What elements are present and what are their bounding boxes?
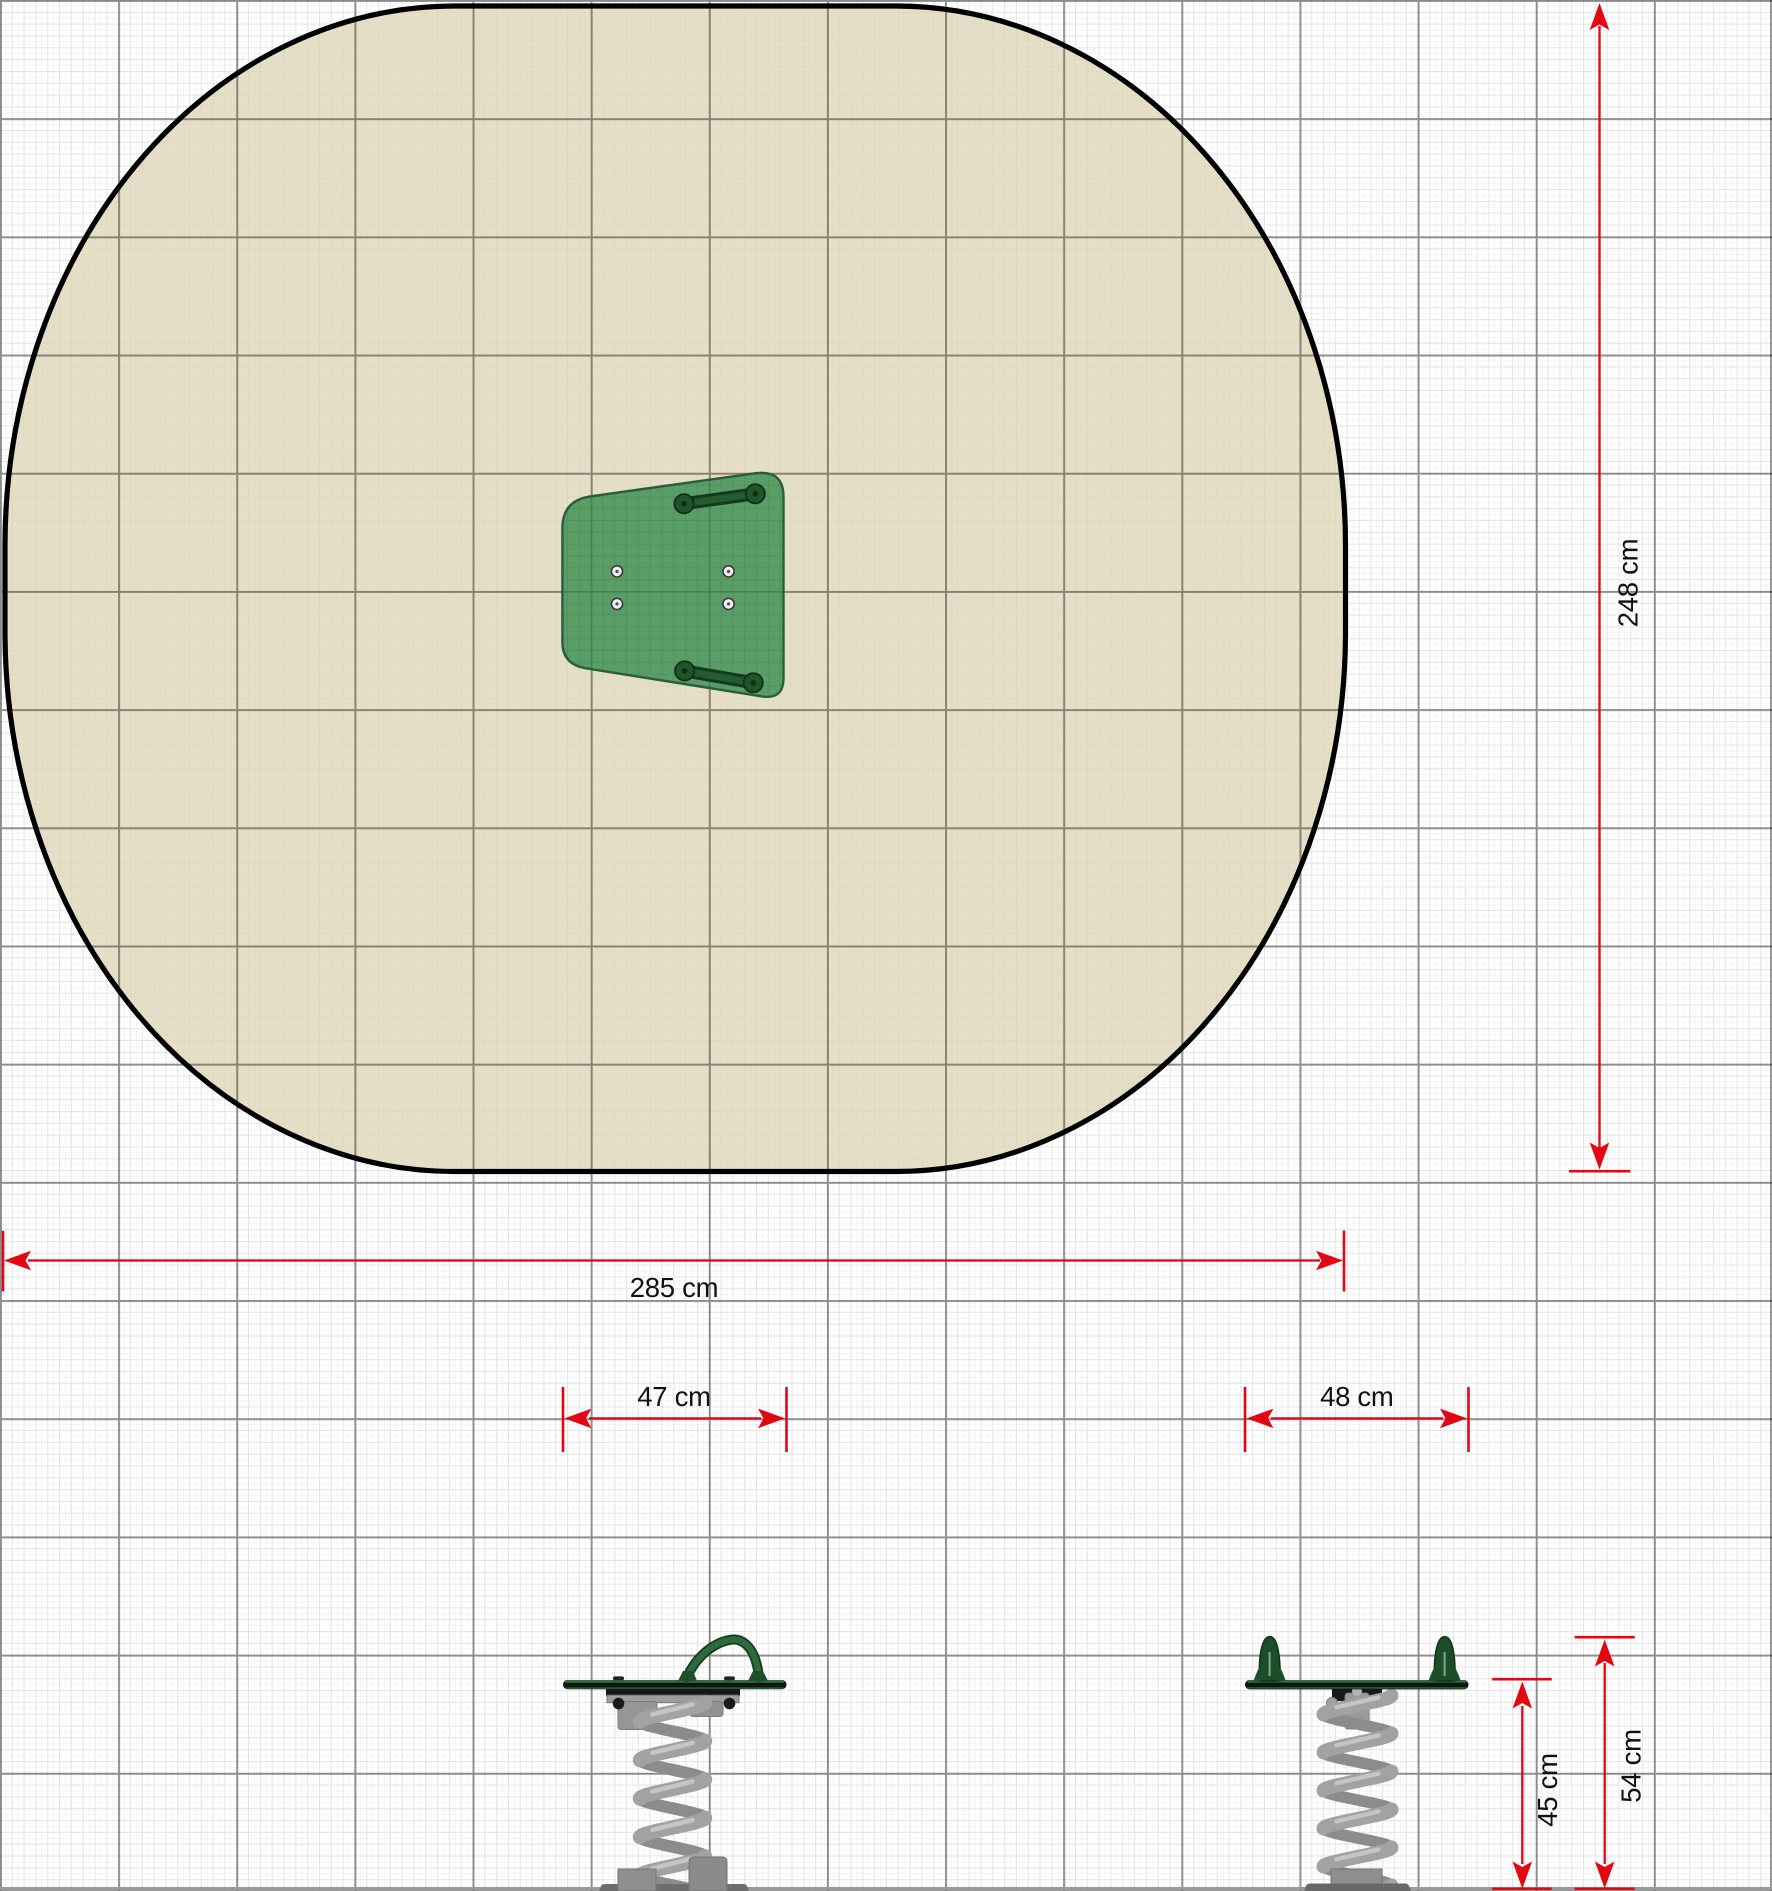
svg-text:47 cm: 47 cm xyxy=(637,1381,710,1412)
svg-text:48 cm: 48 cm xyxy=(1320,1381,1393,1412)
svg-text:248 cm: 248 cm xyxy=(1613,539,1644,627)
svg-text:45 cm: 45 cm xyxy=(1532,1753,1563,1826)
svg-text:285 cm: 285 cm xyxy=(630,1272,718,1303)
svg-text:54 cm: 54 cm xyxy=(1616,1729,1647,1802)
